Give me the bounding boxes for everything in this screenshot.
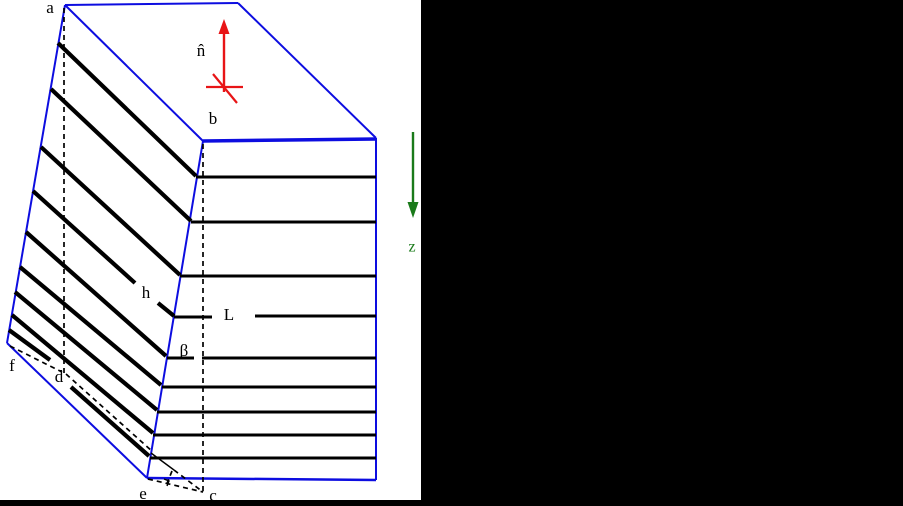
dashed-e-to-c (148, 479, 203, 492)
figure-canvas: abcdefhLβn̂z (0, 0, 903, 506)
diagram-svg: abcdefhLβn̂z (0, 0, 903, 506)
vertex-label-a: a (46, 0, 54, 17)
vertex-label-c: c (209, 486, 217, 505)
bottom-black-panel (0, 500, 903, 506)
layer-line (41, 147, 180, 275)
vertex-label-f: f (9, 356, 15, 375)
normal-vector-label-n-hat: n̂ (197, 41, 206, 60)
layer-line-h-gap (33, 191, 135, 283)
angle-label-beta: β (180, 341, 189, 360)
edge-top-back (65, 3, 238, 5)
z-axis-label: z (408, 239, 415, 256)
vertex-label-d: d (55, 367, 64, 386)
edge-top-right (238, 3, 376, 138)
edge-front-bottom (147, 478, 376, 480)
dimension-label-L: L (224, 305, 234, 324)
dimension-label-h: h (142, 283, 151, 302)
vertex-label-e: e (139, 484, 147, 503)
dashed-foot-to-c (174, 470, 203, 492)
layer-line-h-gap (158, 303, 174, 316)
vertex-label-b: b (209, 109, 218, 128)
z-axis-arrow-head (408, 202, 419, 218)
thin-line-to-foot (151, 453, 174, 470)
right-black-panel (421, 0, 903, 506)
edge-top-front (203, 139, 376, 141)
edge-front-left (147, 141, 203, 478)
layer-line (20, 267, 161, 385)
layer-line (58, 43, 196, 176)
normal-vector-arrow-head (219, 19, 230, 34)
